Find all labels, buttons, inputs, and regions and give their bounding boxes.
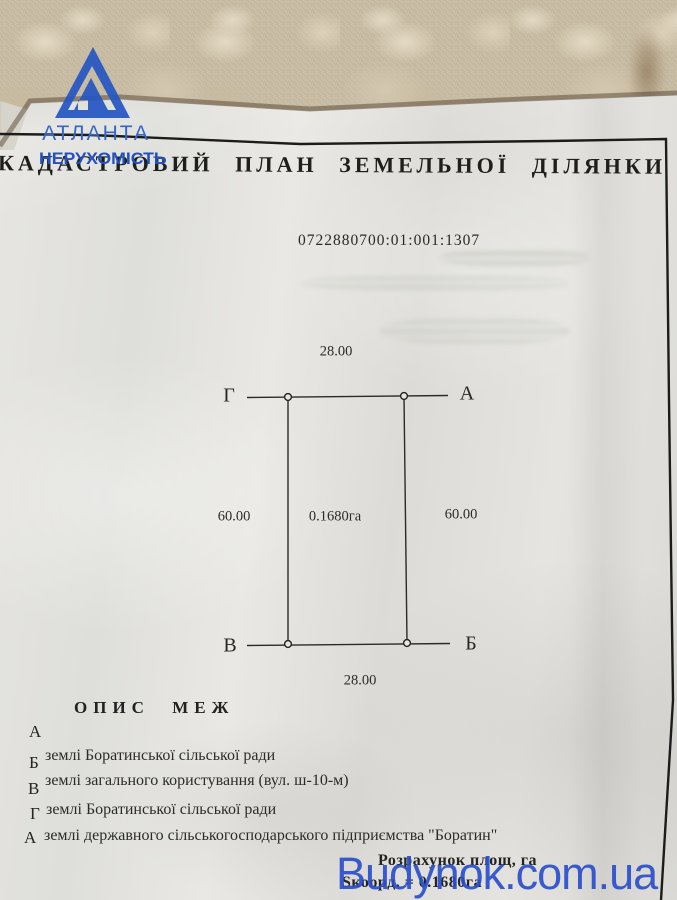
plot-side-bottom-length: 28.00	[344, 673, 377, 690]
plot-corner-bottom-left: В	[223, 635, 236, 658]
boundary-text: землі державного сільськогосподарського …	[44, 827, 497, 845]
plot-side-top-length: 28.00	[320, 344, 353, 361]
plot-corner-top-right: А	[460, 383, 474, 406]
boundary-letter: Б	[29, 753, 39, 773]
plot-corner-bottom-right: Б	[465, 633, 476, 656]
plot-area-label: 0.1680га	[309, 509, 361, 526]
site-watermark: Budynok.com.ua	[336, 848, 657, 900]
plot-side-right-length: 60.00	[445, 507, 478, 524]
boundary-letter: А	[24, 828, 36, 848]
boundary-letter: В	[28, 779, 39, 799]
cadastral-number: 0722880700:01:001:1307	[298, 232, 480, 250]
boundary-letter: Г	[30, 804, 40, 824]
plot-corner-top-left: Г	[223, 385, 235, 408]
boundary-text: землі Боратинської сільської ради	[45, 747, 275, 765]
atlanta-logo-subtitle: НЕРУХОМІСТЬ	[30, 149, 176, 169]
atlanta-logo-name: АТЛАНТА	[40, 122, 152, 146]
photo-of-cadastral-plan: КАДАСТРОВИЙ ПЛАН ЗЕМЕЛЬНОЇ ДІЛЯНКИ 07228…	[0, 0, 677, 900]
boundary-text: землі Боратинської сільської ради	[46, 801, 276, 819]
plot-side-left-length: 60.00	[218, 509, 251, 526]
boundary-description-heading: ОПИС МЕЖ	[74, 698, 234, 718]
boundary-text: землі загального користування (вул. ш-10…	[45, 772, 349, 790]
boundary-letter: А	[29, 722, 41, 742]
